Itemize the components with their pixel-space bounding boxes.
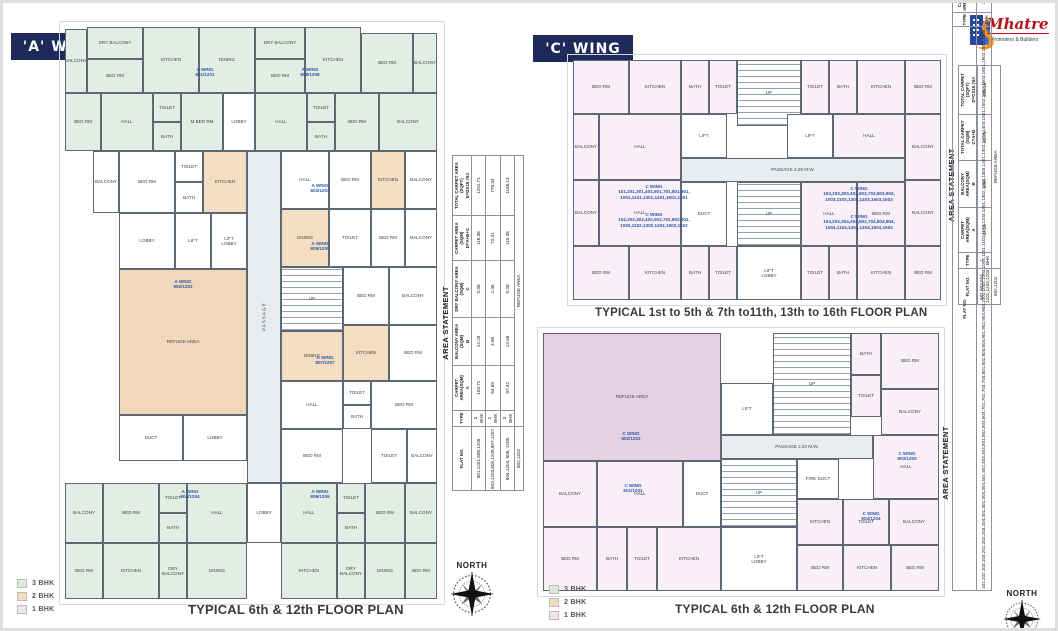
room-label: UP [309, 296, 315, 301]
room-lobby: LOBBY [247, 483, 281, 543]
c-wing-lower-area-statement: AREA STATEMENTFLAT NO.TYPECARPET AREA(SQ… [941, 335, 1019, 591]
room-label: BALCONY [402, 293, 424, 298]
c-wing-compass: NORTH [991, 589, 1053, 631]
value-cell: 2.46 [486, 261, 500, 318]
room-label: TOILET [715, 84, 731, 89]
room-bed-rm: BED RM [543, 527, 597, 591]
room-label: KITCHEN [378, 177, 398, 182]
flat-number-text: C WING 601/1201 [623, 483, 642, 494]
room-label: BED RM [592, 270, 610, 275]
flat-number-label: C WING 604/1204 [843, 511, 899, 527]
room-kitchen: KITCHEN [143, 27, 199, 93]
room-balcony: BALCONY [65, 483, 103, 543]
room-label: BED RM [303, 453, 321, 458]
room-label: BED RM [592, 84, 610, 89]
room-label: DINING [377, 568, 393, 573]
flat-number-label: C WING 601/1201 [603, 483, 663, 499]
room-label: BED RM [914, 270, 932, 275]
room-kitchen: KITCHEN [103, 543, 159, 599]
room-label: UP [766, 90, 772, 95]
room-toilet: TOILET [709, 60, 737, 114]
room-bath: BATH [829, 60, 857, 114]
flat-number-text: A WING 806/1206 [310, 489, 329, 500]
room-bed-rm: BED RM [103, 483, 159, 543]
room-label: BATH [351, 414, 363, 419]
room-label: TOILET [858, 393, 874, 398]
a-wing-caption: TYPICAL 6th & 12th FLOOR PLAN [188, 602, 404, 617]
room-toilet: TOILET [307, 93, 335, 122]
room-label: DINING [209, 568, 225, 573]
room-label: LIFT [742, 406, 751, 411]
room-label: TOILET [715, 270, 731, 275]
room-dry-balcony: DRY BALCONY [255, 27, 305, 59]
room-bath: BATH [307, 122, 335, 151]
room-lift: LIFT [175, 213, 211, 269]
room-bed-rm: BED RM [573, 60, 629, 114]
legend-label: 3 BHK [564, 586, 587, 593]
a-wing-legend: 3 BHK2 BHK1 BHK [17, 579, 55, 618]
flat-number-text: A WING 803/1203 [310, 183, 329, 194]
room-lobby: LOBBY [223, 93, 255, 151]
room-label: BALCONY [903, 519, 925, 524]
room-label: BED RM [348, 119, 366, 124]
flat-number-text: A WING 801/1201 [195, 67, 214, 78]
room-label: LIFT [805, 133, 814, 138]
flat-number-label: A WING 806/1206 [290, 489, 350, 503]
room-kitchen: KITCHEN [343, 325, 389, 381]
room-balcony: BALCONY [413, 33, 437, 93]
room-dining: DINING [365, 543, 405, 599]
staircase: UP [721, 459, 797, 527]
flat-number-text: A WING 804/1204 [180, 489, 199, 500]
c-wing-lower-caption: TYPICAL 6th & 12th FLOOR PLAN [675, 602, 875, 616]
room-toilet: TOILET [175, 151, 203, 182]
room-label: DRY BALCONY [99, 40, 132, 45]
room-label: UP [809, 381, 815, 386]
room-label: BED RM [811, 565, 829, 570]
room-label: BALCONY [397, 119, 419, 124]
room-balcony: BALCONY [905, 114, 941, 180]
room-lift-lobby: LIFT LOBBY [721, 527, 797, 591]
room-label: BED RM [357, 293, 375, 298]
room-bed-rm: BED RM [87, 59, 143, 93]
room-kitchen: KITCHEN [629, 60, 681, 114]
staircase: UP [737, 182, 801, 246]
flat-number-label: A WING 802/1202 [153, 279, 213, 295]
room-label: BED RM [75, 568, 93, 573]
room-lift: LIFT [681, 114, 727, 158]
room-balcony: BALCONY [389, 267, 437, 325]
flat-number-label: C WING 602/1202 [601, 431, 661, 447]
room-dining: DINING [281, 209, 329, 267]
room-label: BED RM [412, 568, 430, 573]
room-bed-rm: BED RM [65, 93, 101, 151]
c-wing-upper-floor-plan: BED RMKITCHENBATHTOILETUPTOILETBATHKITCH… [573, 60, 941, 300]
room-label: HALL [863, 133, 875, 138]
column-header: TYPE [453, 410, 472, 426]
room-bed-rm: BED RM [329, 151, 371, 209]
room-label: HALL [299, 177, 311, 182]
room-dry-balcony: DRY BALCONY [337, 543, 365, 599]
room-label: UP [766, 211, 772, 216]
a-wing-compass: NORTH [441, 561, 503, 622]
room-hall: HALL [101, 93, 153, 151]
room-bed-rm: BED RM [891, 545, 939, 591]
flat-number-text: C WING 101,201,301,401,501,701,801,901, … [618, 184, 690, 200]
north-compass-icon [1002, 599, 1042, 631]
room-label: LOBBY [256, 510, 271, 515]
room-label: BATH [315, 134, 327, 139]
room-hall: HALL [281, 381, 343, 429]
room-bath: BATH [829, 246, 857, 300]
room-label: BATH [837, 270, 849, 275]
room-label: BED RM [341, 177, 359, 182]
room-kitchen: KITCHEN [657, 527, 721, 591]
room-toilet: TOILET [153, 93, 181, 122]
room-bath: BATH [597, 527, 627, 591]
room-label: LOBBY [207, 435, 222, 440]
room-label: BED RM [379, 235, 397, 240]
room-bed-rm: BED RM [405, 543, 437, 599]
room-label: BED RM [106, 73, 124, 78]
room-label: BED RM [404, 350, 422, 355]
value-cell: 778.34 [486, 156, 500, 216]
room-lift-lobby: LIFT LOBBY [211, 213, 247, 269]
room-balcony: BALCONY [405, 209, 437, 267]
room-label: BALCONY [414, 60, 436, 65]
room-bed-rm: BED RM [389, 325, 437, 381]
room-dry-balcony: DRY BALCONY [87, 27, 143, 59]
flat-no-cell: 804,1204, 806, 1206. [500, 426, 514, 490]
room-label: BED RM [378, 60, 396, 65]
room-label: LIFT [188, 238, 197, 243]
room-label: BATH [689, 84, 701, 89]
room-kitchen: KITCHEN [857, 60, 905, 114]
room-dining: DINING [199, 27, 255, 93]
value-cell: REFUGE AREA [515, 156, 524, 427]
room-bed-rm: BED RM [905, 60, 941, 114]
room-label: BED RM [395, 402, 413, 407]
value-cell: 0.38 [500, 261, 514, 318]
room-bed-rm: BED RM [881, 333, 939, 389]
legend-label: 2 BHK [32, 593, 55, 600]
legend-item: 2 BHK [549, 598, 587, 607]
value-cell: 72.31 [486, 216, 500, 261]
room-hall: HALL [599, 114, 681, 180]
room-duct: DUCT [119, 415, 183, 461]
room-label: KITCHEN [645, 84, 665, 89]
room-label: BATH [167, 525, 179, 530]
room-label: BALCONY [411, 453, 433, 458]
room-balcony: BALCONY [881, 389, 939, 435]
room-kitchen: KITCHEN [797, 499, 843, 545]
legend-color-swatch [549, 598, 559, 607]
room-label: LIFT LOBBY [751, 554, 766, 565]
room-label: KITCHEN [645, 270, 665, 275]
room-lift-lobby: LIFT LOBBY [737, 246, 801, 300]
room-toilet: TOILET [801, 246, 829, 300]
room-label: HALL [306, 402, 318, 407]
room-label: BALCONY [410, 510, 432, 515]
room-balcony: BALCONY [405, 151, 437, 209]
room-dry-balcony: DRY BALCONY [159, 543, 187, 599]
room-label: TOILET [159, 105, 175, 110]
room-kitchen: KITCHEN [843, 545, 891, 591]
room-bath: BATH [153, 122, 181, 151]
column-header: FLAT NO. [953, 27, 977, 591]
room-label: DRY BALCONY [160, 566, 186, 577]
room-label: LIFT LOBBY [761, 268, 776, 279]
flat-number-label: A WING 807/1207 [295, 355, 355, 369]
room-toilet: TOILET [851, 375, 881, 417]
room-passage-2-20-m-w-: PASSAGE 2.20 M.W. [721, 435, 873, 459]
room-label: KITCHEN [215, 179, 235, 184]
room-label: BALCONY [899, 409, 921, 414]
room-label: DUCT [145, 435, 158, 440]
flat-number-text: C WING 604/1204 [861, 511, 880, 522]
staircase: UP [281, 267, 343, 331]
room-label: DINING [297, 235, 313, 240]
room-bed-rm: BED RM [335, 93, 379, 151]
column-header: TOTAL CARPET AREA (SQFT) E=DX10.764 [453, 156, 472, 216]
room-label: HALL [211, 510, 223, 515]
flat-number-text: A WING 807/1207 [315, 355, 334, 366]
room-kitchen: KITCHEN [305, 27, 361, 93]
room-toilet: TOILET [343, 381, 371, 405]
room-hall: HALL [833, 114, 905, 158]
room-label: BED RM [138, 179, 156, 184]
room-label: BED RM [376, 510, 394, 515]
room-label: UP [756, 490, 762, 495]
brand-tagline: Promoters & Builders [991, 37, 1038, 43]
room-balcony: BALCONY [543, 461, 597, 527]
value-cell: 12.29 [471, 317, 485, 365]
room-lobby: LOBBY [119, 213, 175, 269]
flat-number-label: C WING 103,203,303,403,503,703,803,903, … [799, 186, 919, 212]
room-label: BATH [837, 84, 849, 89]
value-cell: 103.71 [471, 365, 485, 410]
flat-number-text: C WING 603/1203 [897, 451, 916, 462]
room-bed-rm: BED RM [573, 246, 629, 300]
room-hall: HALL [873, 435, 939, 499]
area-statement-table: FLAT NO.TYPECARPET AREA(SQM) ABALCONY AR… [952, 0, 992, 591]
flat-no-cell: 801,1201,808,1208 [471, 426, 485, 490]
value-cell: 64.89 [486, 365, 500, 410]
flat-number-label: A WING 803/1203 [290, 183, 350, 197]
room-bed-rm: BED RM [371, 209, 405, 267]
room-toilet: TOILET [371, 429, 407, 483]
flat-number-text: A WING 802/1202 [173, 279, 192, 290]
room-label: PASSAGE [261, 303, 266, 332]
room-lobby: LOBBY [183, 415, 247, 461]
room-label: LIFT LOBBY [221, 236, 236, 247]
room-label: BATH [689, 270, 701, 275]
room-kitchen: KITCHEN [281, 543, 337, 599]
room-label: BED RM [906, 565, 924, 570]
flat-number-label: A WING 801/1201 [175, 67, 235, 83]
room-label: TOILET [349, 390, 365, 395]
flat-number-text: C WING 602/1202 [621, 431, 640, 442]
room-label: TOILET [181, 164, 197, 169]
a-wing-floor-plan: BALCONYDRY BALCONYBED RMKITCHENDININGDRY… [65, 27, 437, 599]
room-label: REFUGE AREA [167, 339, 200, 344]
room-passage-2-20-m-w-: PASSAGE 2.20 M.W. [681, 158, 905, 182]
room-label: BALCONY [65, 58, 87, 63]
room-balcony: BALCONY [379, 93, 437, 151]
legend-item: 2 BHK [17, 592, 55, 601]
flat-number-label: C WING 104,204,304,404,504,704,804,904, … [799, 214, 919, 240]
room-label: KITCHEN [871, 84, 891, 89]
room-label: BALCONY [575, 144, 597, 149]
area-statement-title: AREA STATEMENT [441, 155, 450, 491]
value-cell: 0.38 [471, 261, 485, 318]
room-label: TOILET [381, 453, 397, 458]
room-bed-rm: BED RM [343, 267, 389, 325]
c-wing-lower-floor-plan: REFUGE AREAC WING 602/1202LIFTUPBATHBED … [543, 333, 939, 591]
room-balcony: BALCONY [65, 29, 87, 93]
room-label: DRY BALCONY [264, 40, 297, 45]
value-cell: 4.96 [486, 317, 500, 365]
area-statement-table: FLAT NO.TYPECARPET AREA(SQM) ABALCONY AR… [452, 155, 524, 491]
flat-number-text: A WING 808/1208 [300, 67, 319, 78]
room-bath: BATH [681, 60, 709, 114]
room-label: BALCONY [410, 177, 432, 182]
room-label: PASSAGE 2.20 M.W. [775, 444, 819, 449]
room-label: BED RM [122, 510, 140, 515]
room-label: TOILET [313, 105, 329, 110]
room-label: DRY BALCONY [338, 566, 364, 577]
legend-item: 1 BHK [17, 605, 55, 614]
room-label: BED RM [901, 358, 919, 363]
room-label: M.BED RM [191, 119, 214, 124]
room-hall: HALL [255, 93, 307, 151]
value-cell: 12.58 [500, 317, 514, 365]
room-kitchen: KITCHEN [203, 151, 247, 213]
legend-color-swatch [549, 611, 559, 620]
north-compass-icon [449, 571, 495, 617]
room-label: BALCONY [410, 235, 432, 240]
room-bath: BATH [343, 405, 371, 429]
room-label: TOILET [342, 235, 358, 240]
room-balcony: BALCONY [573, 114, 599, 180]
room-bed-rm: BED RM [361, 33, 413, 93]
room-bed-rm: BED RM [65, 543, 103, 599]
room-label: TOILET [807, 270, 823, 275]
room-label: BATH [606, 556, 618, 561]
legend-label: 2 BHK [564, 599, 587, 606]
room-label: KITCHEN [679, 556, 699, 561]
room-fire-duct: FIRE DUCT [797, 459, 839, 499]
room-bath: BATH [681, 246, 709, 300]
room-kitchen: KITCHEN [629, 246, 681, 300]
room-toilet: TOILET [329, 209, 371, 267]
room-label: FIRE DUCT [806, 476, 831, 481]
legend-color-swatch [17, 592, 27, 601]
value-cell: 1188.13 [500, 156, 514, 216]
flat-no-cell: 802,1202 [515, 426, 524, 490]
flat-number-label: C WING 101,201,301,401,501,701,801,901, … [587, 184, 721, 210]
value-cell: REFUGE AREA [992, 66, 1001, 269]
room-label: HALL [634, 144, 646, 149]
room-label: BALCONY [95, 179, 117, 184]
legend-label: 3 BHK [32, 580, 55, 587]
room-bath: BATH [159, 513, 187, 543]
column-header: BALCONY AREA (SQM) B [453, 317, 472, 365]
flat-number-text: C WING 104,204,304,404,504,704,804,904, … [823, 214, 895, 230]
room-bath: BATH [175, 182, 203, 213]
room-label: BALCONY [73, 510, 95, 515]
room-label: DINING [219, 57, 235, 62]
staircase: UP [773, 333, 851, 435]
room-toilet: TOILET [709, 246, 737, 300]
room-toilet: TOILET [801, 60, 829, 114]
room-label: BALCONY [912, 144, 934, 149]
room-duct: DUCT [683, 461, 721, 527]
north-label: NORTH [991, 589, 1053, 598]
column-header: CARPET AREA (SQM) D=A+B+C [453, 216, 472, 261]
room-lift: LIFT [721, 383, 773, 435]
room-kitchen: KITCHEN [371, 151, 405, 209]
flat-no-cell: 803,1203,805,1205,807,1207. [486, 426, 500, 490]
room-bed-rm: BED RM [281, 429, 343, 483]
a-wing-area-statement: AREA STATEMENTFLAT NO.TYPECARPET AREA(SQ… [441, 155, 527, 491]
c-wing-legend: 3 BHK2 BHK1 BHK [549, 585, 587, 624]
value-cell: 2 BHK [486, 410, 500, 426]
value-cell: 37.23 [977, 0, 991, 12]
room-bed-rm: BED RM [797, 545, 843, 591]
room-balcony: BALCONY [93, 151, 119, 213]
flat-number-label: C WING 603/1203 [879, 451, 935, 467]
room-label: LOBBY [139, 238, 154, 243]
room-label: BED RM [74, 119, 92, 124]
room-label: TOILET [634, 556, 650, 561]
room-bed-rm: BED RM [905, 246, 941, 300]
room-label: KITCHEN [299, 568, 319, 573]
flat-no-cell: 101,102,103,104,201,202,203,204,301,302,… [977, 27, 991, 591]
brand-name: Mhatre [987, 17, 1049, 34]
room-label: BATH [161, 134, 173, 139]
legend-color-swatch [549, 585, 559, 594]
north-label: NORTH [441, 561, 503, 570]
room-label: KITCHEN [810, 519, 830, 524]
legend-color-swatch [17, 605, 27, 614]
area-statement-title: AREA STATEMENT [941, 335, 950, 591]
room-bed-rm: BED RM [119, 151, 175, 213]
legend-label: 1 BHK [32, 606, 55, 613]
flat-no-cell: 602,1202 [992, 268, 1001, 304]
flat-number-label: A WING 804/1204 [160, 489, 220, 503]
room-label: LIFT [699, 133, 708, 138]
legend-label: 1 BHK [564, 612, 587, 619]
room-hall: HALL [281, 151, 329, 209]
c-wing-upper-caption: TYPICAL 1st to 5th & 7th to11th, 13th to… [595, 307, 927, 319]
legend-item: 3 BHK [549, 585, 587, 594]
flat-number-label: A WING 805/1205 [290, 241, 350, 255]
room-passage: PASSAGE [247, 151, 281, 483]
legend-item: 3 BHK [17, 579, 55, 588]
room-label: BATH [183, 195, 195, 200]
room-label: KITCHEN [161, 57, 181, 62]
flat-number-text: C WING 103,203,303,403,503,703,803,903, … [823, 186, 895, 202]
room-label: HALL [303, 510, 315, 515]
room-bath: BATH [851, 333, 881, 375]
column-header: TYPE [953, 12, 977, 26]
legend-item: 1 BHK [549, 611, 587, 620]
value-cell: 3 BHK [471, 410, 485, 426]
value-cell: 1 BHK [977, 12, 991, 26]
column-header: CARPET AREA(SQM) A [453, 365, 472, 410]
room-label: TOILET [807, 84, 823, 89]
